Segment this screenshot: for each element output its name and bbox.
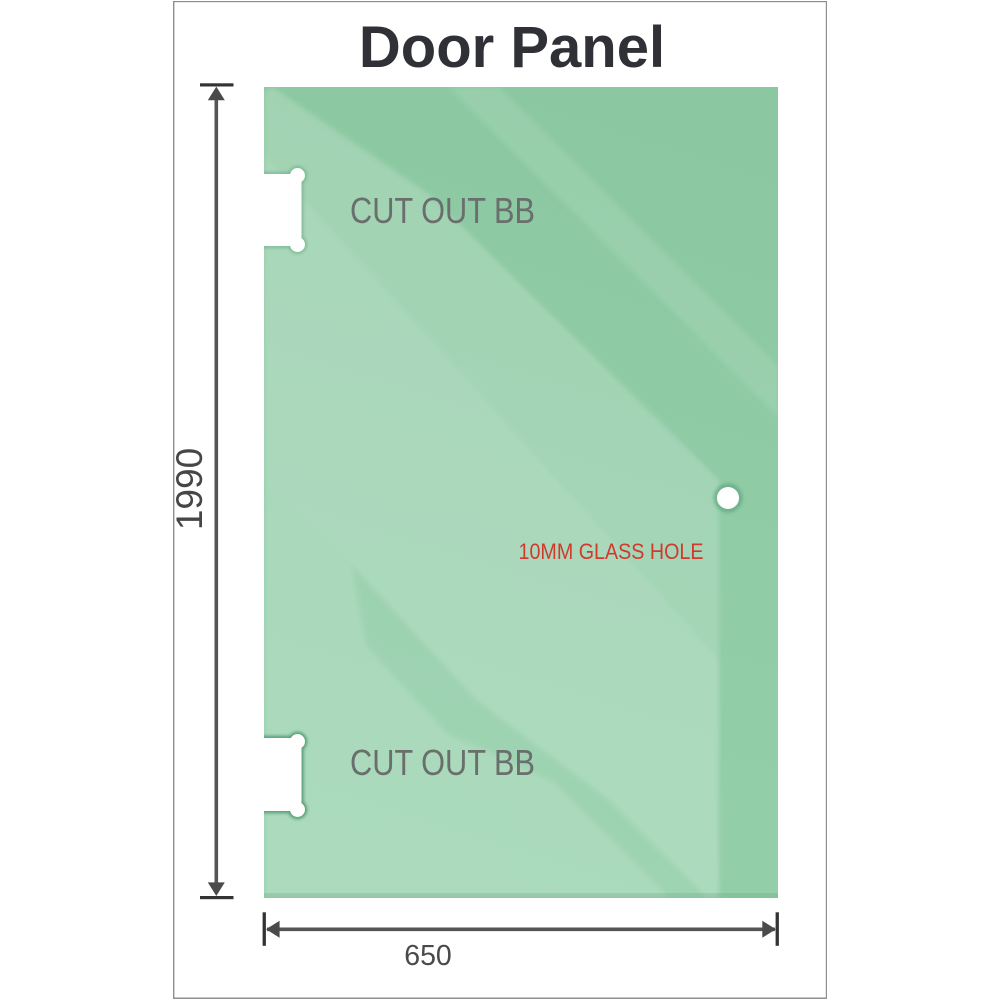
svg-text:CUT OUT BB: CUT OUT BB	[350, 742, 535, 783]
svg-text:CUT OUT BB: CUT OUT BB	[350, 190, 535, 231]
svg-text:1990: 1990	[169, 448, 210, 530]
svg-text:650: 650	[404, 940, 452, 972]
svg-text:10MM GLASS HOLE: 10MM GLASS HOLE	[519, 539, 704, 564]
svg-text:Door Panel: Door Panel	[359, 15, 665, 80]
